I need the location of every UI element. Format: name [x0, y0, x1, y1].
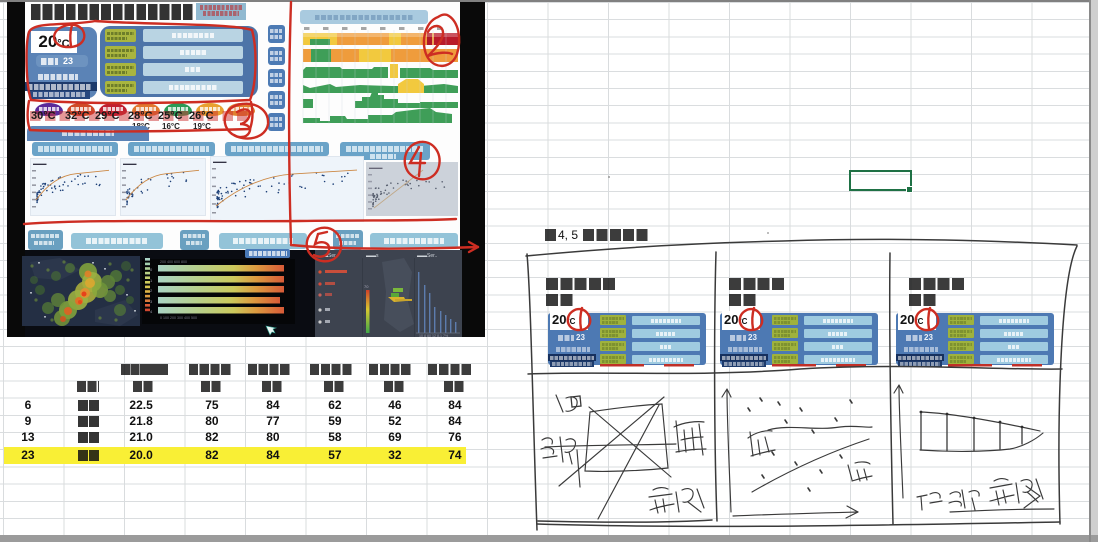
svg-text:0 100 200 300 400: 0 100 200 300 400 500 [160, 316, 197, 320]
svg-text:▬▬▬: ▬▬▬ [369, 165, 383, 170]
svg-text:▬▬Ser..: ▬▬Ser.. [417, 253, 437, 259]
svg-text:3: 3 [150, 299, 153, 304]
svg-text:10 8 80 12 8.1 7%: 10 8 80 12 8.1 7% [419, 334, 449, 338]
svg-text:▬▬s: ▬▬s [366, 253, 379, 259]
svg-text:2: 2 [150, 288, 153, 293]
svg-text:▬▬▬: ▬▬▬ [123, 161, 137, 166]
svg-text:70: 70 [364, 284, 369, 289]
svg-text:▬▬▬: ▬▬▬ [213, 159, 227, 164]
svg-text:▬▬Ser..: ▬▬Ser.. [318, 253, 338, 259]
svg-text:200 400 600 800: 200 400 600 800 [160, 260, 187, 264]
svg-text:0: 0 [150, 267, 153, 272]
svg-text:▬▬▬: ▬▬▬ [33, 161, 47, 166]
svg-text:4: 4 [150, 309, 153, 314]
svg-text:1: 1 [150, 278, 153, 283]
